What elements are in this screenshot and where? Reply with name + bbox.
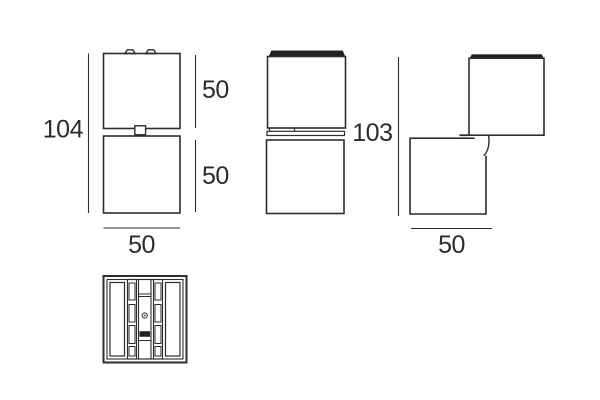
dim-label-total-height: 104 bbox=[43, 116, 84, 144]
front-upper-cube bbox=[104, 54, 181, 129]
plan-outer-frame bbox=[104, 276, 187, 363]
dim-label-rotated-width: 50 bbox=[438, 231, 465, 259]
bracket-segment bbox=[129, 326, 135, 344]
plan-left-panel bbox=[110, 283, 125, 357]
bracket-segment bbox=[129, 283, 135, 300]
bracket-segment bbox=[129, 305, 135, 323]
technical-drawing-canvas: 104 50 50 50 103 bbox=[0, 0, 600, 400]
bracket-segment bbox=[155, 326, 161, 344]
ceiling-plate bbox=[269, 51, 345, 57]
bracket-segment bbox=[155, 283, 161, 300]
front-elevation-view: 104 50 50 50 bbox=[43, 50, 229, 259]
plan-center-spine bbox=[139, 280, 152, 360]
dim-label-upper-height: 50 bbox=[202, 76, 229, 104]
plan-right-panel bbox=[166, 283, 181, 357]
bracket-segment bbox=[155, 347, 161, 357]
hinge-plate bbox=[267, 131, 345, 135]
side-lower-cube bbox=[267, 140, 345, 214]
dimension-drawing: 104 50 50 50 103 bbox=[0, 0, 600, 400]
plan-view bbox=[104, 276, 187, 363]
bracket-segment bbox=[129, 347, 135, 357]
front-lower-cube bbox=[104, 136, 181, 213]
plan-inner-frame bbox=[107, 280, 183, 360]
spine-dark-block bbox=[140, 332, 150, 337]
rotated-upper-cube bbox=[469, 58, 544, 135]
rotated-lower-cube bbox=[410, 138, 486, 214]
screw-center-dot bbox=[144, 315, 146, 317]
side-upper-cube bbox=[268, 57, 346, 129]
rotated-elevation-view: 103 50 bbox=[352, 55, 544, 259]
dim-label-rotated-height: 103 bbox=[352, 119, 392, 147]
dim-label-lower-height: 50 bbox=[202, 162, 229, 190]
side-elevation-view bbox=[267, 51, 346, 214]
dim-label-front-width: 50 bbox=[128, 231, 155, 259]
swivel-bracket-curve bbox=[484, 135, 489, 156]
bracket-segment bbox=[155, 305, 161, 323]
hinge-block bbox=[135, 126, 146, 135]
